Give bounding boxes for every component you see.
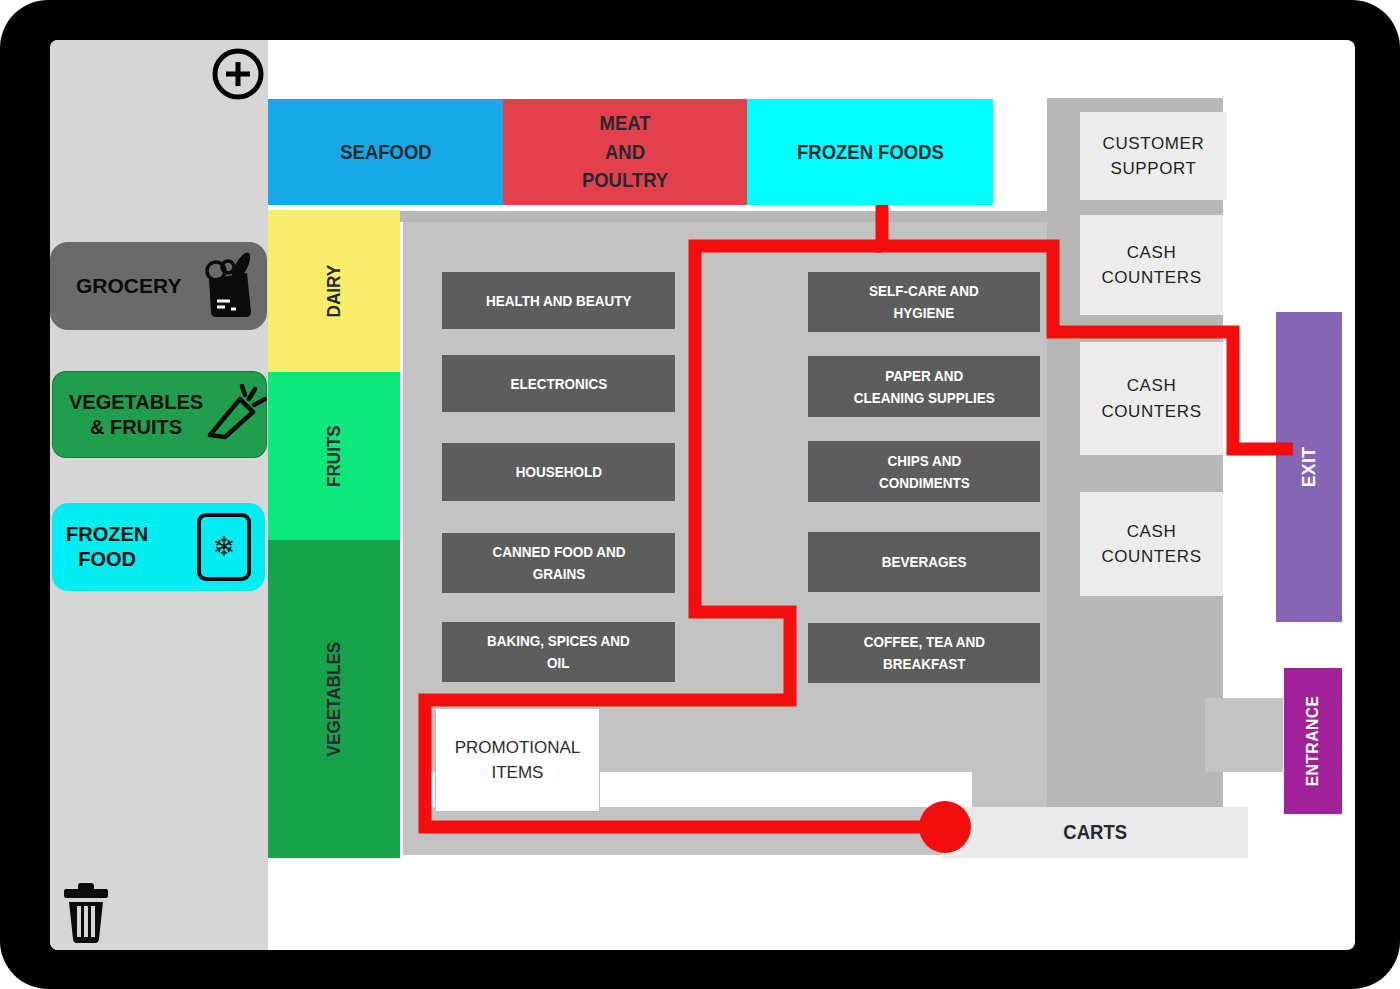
promotional-items-label: PROMOTIONAL ITEMS <box>455 735 581 786</box>
trash-icon <box>62 883 110 943</box>
section-meat-poultry[interactable]: MEAT AND POULTRY <box>503 99 747 205</box>
section-dairy[interactable]: DAIRY <box>268 210 400 372</box>
frozen-food-label: FROZEN FOOD <box>66 522 148 572</box>
plus-circle-icon <box>211 47 265 101</box>
aisle-canned-food-grains[interactable]: CANNED FOOD AND GRAINS <box>442 533 675 593</box>
aisle-label: BEVERAGES <box>882 551 967 573</box>
aisle-label: CHIPS AND CONDIMENTS <box>879 450 970 494</box>
section-frozen-foods[interactable]: FROZEN FOODS <box>747 99 993 205</box>
aisle-label: BAKING, SPICES AND OIL <box>487 630 630 674</box>
aisle-label: HEALTH AND BEAUTY <box>486 290 632 312</box>
cash-counters-label: CASH COUNTERS <box>1101 373 1201 424</box>
carts-label: CARTS <box>1063 818 1127 847</box>
aisle-electronics[interactable]: ELECTRONICS <box>442 355 675 412</box>
aisle-label: COFFEE, TEA AND BREAKFAST <box>863 631 984 675</box>
aisle-health-and-beauty[interactable]: HEALTH AND BEAUTY <box>442 272 675 329</box>
aisle-label: ELECTRONICS <box>510 373 607 395</box>
grocery-bag-icon <box>195 248 255 324</box>
device-frame: GROCERY VEGETABLES & FRUITS FROZEN FOOD … <box>0 0 1400 989</box>
aisle-self-care-hygiene[interactable]: SELF-CARE AND HYGIENE <box>808 272 1040 332</box>
sidebar-item-grocery[interactable]: GROCERY <box>50 242 267 330</box>
cash-counters-box-3[interactable]: CASH COUNTERS <box>1080 492 1223 596</box>
dairy-label: DAIRY <box>321 265 347 318</box>
aisle-paper-cleaning[interactable]: PAPER AND CLEANING SUPPLIES <box>808 356 1040 417</box>
cash-counters-label: CASH COUNTERS <box>1101 519 1201 570</box>
customer-support-label: CUSTOMER SUPPORT <box>1103 131 1205 182</box>
cash-counters-label: CASH COUNTERS <box>1101 240 1201 291</box>
section-vegetables[interactable]: VEGETABLES <box>268 540 400 858</box>
section-fruits[interactable]: FRUITS <box>268 372 400 540</box>
aisle-label: CANNED FOOD AND GRAINS <box>492 541 625 585</box>
entrance-label: ENTRANCE <box>1303 696 1323 787</box>
snowflake-icon: ❄ <box>213 531 236 563</box>
section-seafood[interactable]: SEAFOOD <box>268 99 503 205</box>
meat-poultry-label: MEAT AND POULTRY <box>582 109 668 196</box>
frozen-package-icon: ❄ <box>197 513 251 581</box>
aisle-label: PAPER AND CLEANING SUPPLIES <box>853 365 994 409</box>
aisle-household[interactable]: HOUSEHOLD <box>442 443 675 501</box>
aisle-label: HOUSEHOLD <box>515 461 601 483</box>
carrot-icon <box>203 384 267 446</box>
cash-counters-box-2[interactable]: CASH COUNTERS <box>1080 342 1223 455</box>
exit-door[interactable]: EXIT <box>1276 312 1342 622</box>
vegetables-label: VEGETABLES <box>321 642 347 757</box>
fruits-label: FRUITS <box>321 425 347 487</box>
aisle-baking-spices-oil[interactable]: BAKING, SPICES AND OIL <box>442 622 675 682</box>
aisle-beverages[interactable]: BEVERAGES <box>808 532 1040 592</box>
frozen-foods-label: FROZEN FOODS <box>797 138 944 167</box>
add-section-button[interactable] <box>211 47 265 101</box>
vegetables-fruits-label: VEGETABLES & FRUITS <box>69 390 203 440</box>
aisle-label: SELF-CARE AND HYGIENE <box>869 280 979 324</box>
cash-counters-box-1[interactable]: CASH COUNTERS <box>1080 215 1223 315</box>
customer-support-box[interactable]: CUSTOMER SUPPORT <box>1080 112 1227 200</box>
exit-label: EXIT <box>1298 447 1320 488</box>
aisle-chips-condiments[interactable]: CHIPS AND CONDIMENTS <box>808 441 1040 502</box>
carts-box[interactable]: CARTS <box>942 807 1248 858</box>
promotional-items-box[interactable]: PROMOTIONAL ITEMS <box>435 708 600 812</box>
sidebar <box>50 40 268 950</box>
aisle-coffee-tea-breakfast[interactable]: COFFEE, TEA AND BREAKFAST <box>808 623 1040 683</box>
entrance-corridor <box>1205 698 1283 772</box>
seafood-label: SEAFOOD <box>340 138 431 167</box>
map-wall-top <box>285 211 1073 222</box>
delete-button[interactable] <box>62 883 110 943</box>
entrance-door[interactable]: ENTRANCE <box>1284 668 1342 814</box>
grocery-label: GROCERY <box>76 273 181 299</box>
sidebar-item-vegetables-fruits[interactable]: VEGETABLES & FRUITS <box>52 371 267 458</box>
sidebar-item-frozen-food[interactable]: FROZEN FOOD ❄ <box>52 503 265 591</box>
